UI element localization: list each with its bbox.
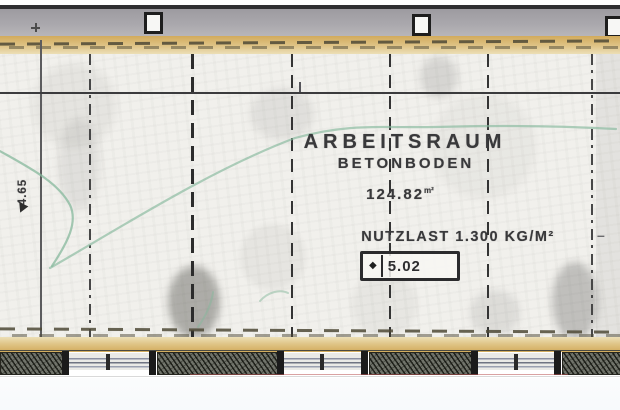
wall-post	[62, 351, 69, 375]
elevation-diamond-icon: ◆	[369, 261, 377, 271]
insulation-hatch	[0, 327, 620, 333]
live-load-label: NUTZLAST 1.300 KG/M²	[308, 229, 608, 245]
wall-shadow-line	[0, 376, 620, 377]
window-mullion	[106, 354, 110, 370]
elevation-marker-box: ◆ 5.02	[360, 251, 460, 281]
window-mullion	[320, 354, 324, 370]
wall-post	[149, 351, 156, 375]
wall-segment	[157, 352, 279, 375]
elevation-box-divider	[381, 255, 383, 277]
room-label: ARBEITSRAUM	[288, 131, 522, 154]
wall-segment	[562, 352, 620, 375]
floor-plan-scan: ARBEITSRAUM BETONBODEN 124.82m² NUTZLAST…	[0, 0, 620, 410]
wall-segment	[369, 352, 473, 375]
floor-material-label: BETONBODEN	[318, 155, 494, 172]
window-mullion	[514, 354, 518, 370]
bottom-wall-band	[0, 350, 620, 375]
faint-red-reference-line	[190, 374, 568, 375]
wall-segment	[0, 352, 65, 375]
wall-post	[277, 351, 284, 375]
room-area-value: 124.82m²	[330, 186, 470, 203]
insulation-hatch-bottom	[0, 328, 620, 337]
area-number: 124.82	[366, 186, 424, 203]
wall-post	[471, 351, 478, 375]
elevation-value: 5.02	[388, 258, 421, 275]
stray-scan-mark: –	[597, 227, 605, 243]
wall-post	[554, 351, 561, 375]
area-unit: m²	[424, 186, 434, 195]
wall-post	[361, 351, 368, 375]
bottom-margin	[0, 378, 620, 410]
